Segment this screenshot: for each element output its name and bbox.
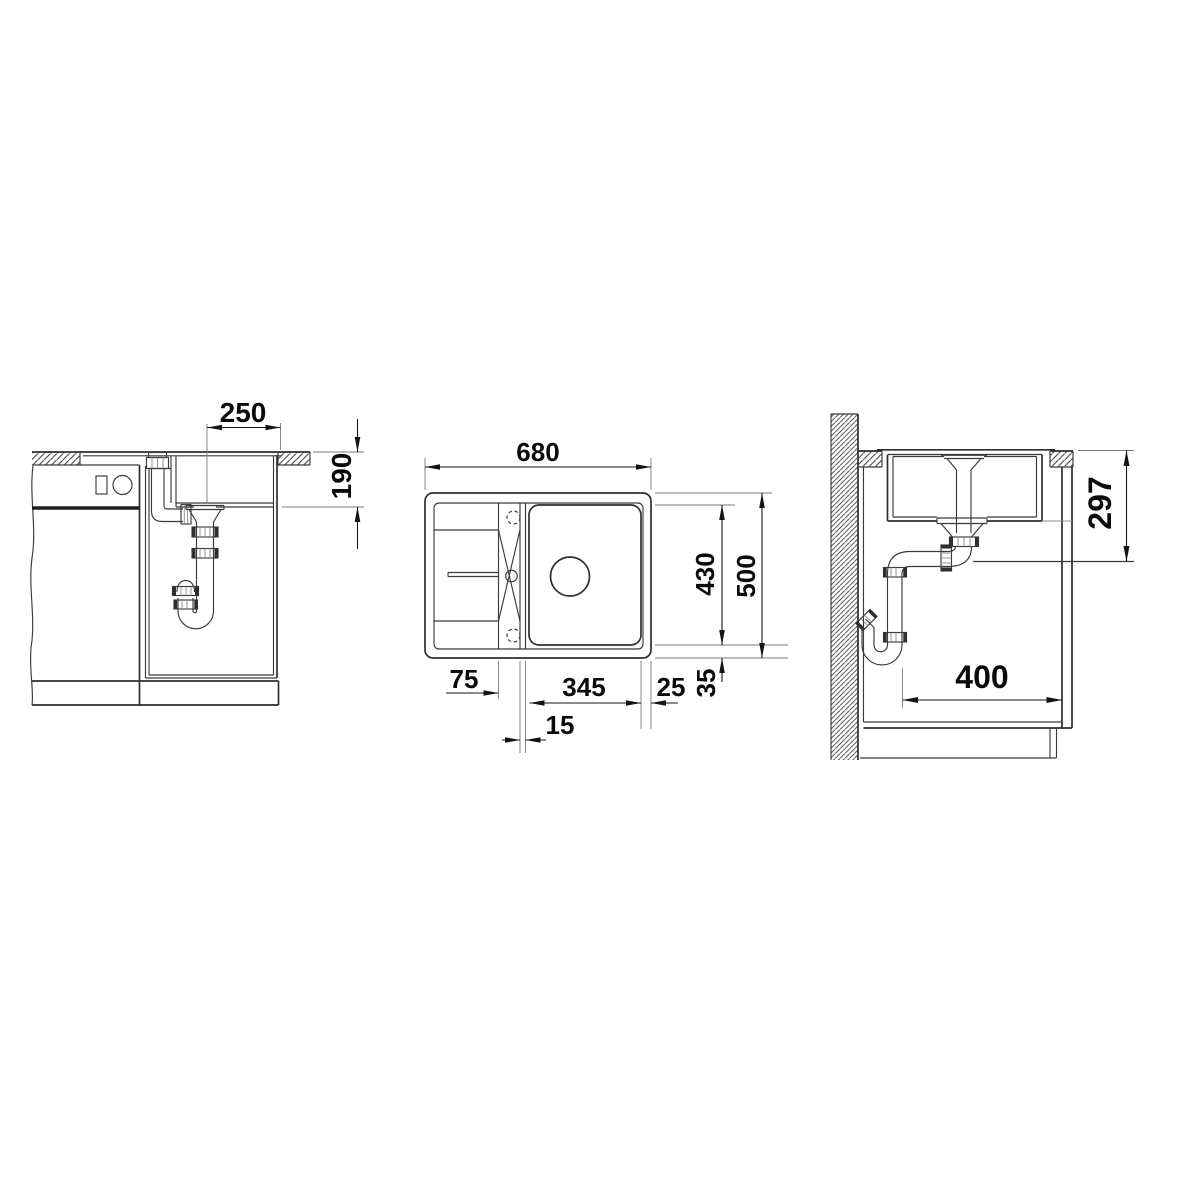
nut-end xyxy=(174,600,177,609)
dim-arrow xyxy=(355,437,361,452)
dim-arrow xyxy=(759,643,765,658)
trap-u-bend xyxy=(193,611,197,613)
trap-u-bend xyxy=(178,611,214,629)
nut-end xyxy=(215,549,219,559)
dimension-345: 345 xyxy=(530,672,642,706)
sink-cross-section xyxy=(877,450,1055,533)
trap-u-bend xyxy=(874,645,888,652)
drain-taper xyxy=(214,510,222,523)
nut-end xyxy=(194,600,197,609)
nut-end xyxy=(941,568,952,572)
overflow-pipe xyxy=(152,469,184,522)
wall xyxy=(831,414,858,760)
drainboard xyxy=(434,503,526,649)
dim-arrow xyxy=(1047,697,1063,703)
dimension-400: 400 xyxy=(903,659,1063,708)
nut-end xyxy=(903,633,906,643)
nut-end xyxy=(941,545,952,549)
counter-hatch-left xyxy=(858,452,882,468)
dim-arrow xyxy=(530,700,545,706)
break-line xyxy=(31,466,34,705)
strainer-body xyxy=(937,518,987,537)
dim-label-430: 430 xyxy=(690,552,720,595)
dim-label-25: 25 xyxy=(657,672,686,702)
dim-arrow xyxy=(759,493,765,508)
nut-end xyxy=(195,587,199,596)
counter-hatch-left xyxy=(32,453,80,466)
strainer-nut xyxy=(950,537,979,547)
technical-drawing: 250 190 xyxy=(0,0,1200,1200)
nut-end xyxy=(192,549,196,559)
tailpipe-nut xyxy=(192,549,218,559)
tap-hole-dashed xyxy=(507,511,520,524)
nut-end xyxy=(975,537,979,547)
drain-hole xyxy=(551,557,590,596)
dim-arrow xyxy=(719,630,725,645)
dim-arrow xyxy=(484,690,499,696)
dim-label-297: 297 xyxy=(1082,476,1118,529)
dim-label-250: 250 xyxy=(220,397,267,428)
drain-funnel xyxy=(941,455,987,533)
dim-arrow xyxy=(626,700,641,706)
funnel-taper xyxy=(947,459,957,471)
appliance-button xyxy=(96,476,107,494)
tap-hole-nut xyxy=(147,458,169,469)
dim-arrow xyxy=(425,464,440,470)
nut-end xyxy=(192,527,196,537)
dim-label-75: 75 xyxy=(450,664,479,694)
bowl-edge xyxy=(529,505,641,645)
dimension-25: 25 xyxy=(651,672,685,706)
sink-outline xyxy=(425,493,651,658)
dim-label-190: 190 xyxy=(326,453,357,500)
counter-hatch-right xyxy=(1050,452,1073,468)
nut-end xyxy=(173,587,177,596)
trap-u-bend xyxy=(862,645,902,665)
funnel-taper xyxy=(971,459,981,471)
dimension-250: 250 xyxy=(207,397,281,502)
wall-hatch xyxy=(831,414,858,760)
main-bowl xyxy=(529,505,641,645)
nut-end xyxy=(215,527,219,537)
dimension-75: 75 xyxy=(446,664,499,696)
dim-arrow xyxy=(505,737,520,743)
siphon xyxy=(856,518,987,665)
dimension-680: 680 xyxy=(425,437,651,490)
nut-end xyxy=(884,568,887,578)
strainer-taper xyxy=(972,524,984,538)
sink-installation-drawing-page: 250 190 xyxy=(0,0,1200,1200)
dimension-430: 430 xyxy=(655,505,788,645)
nut-end xyxy=(884,633,887,643)
strainer-taper xyxy=(941,524,953,538)
dimension-35: 35 xyxy=(691,658,725,697)
side-section-view: 297 400 xyxy=(831,414,1134,760)
dim-arrow xyxy=(526,737,541,743)
sink-cross-section xyxy=(83,453,281,508)
tap-hole-dashed xyxy=(507,629,520,642)
appliance-knob xyxy=(113,476,132,495)
front-section-view: 250 190 xyxy=(31,397,364,705)
dim-arrow xyxy=(1124,546,1130,562)
dim-label-500: 500 xyxy=(731,554,761,597)
dim-label-400: 400 xyxy=(955,659,1008,695)
nut-end xyxy=(903,568,906,578)
dim-label-35: 35 xyxy=(691,669,721,698)
dim-arrow xyxy=(636,464,651,470)
control-knob xyxy=(506,570,518,582)
top-view: 680 430 500 35 xyxy=(425,437,788,753)
dim-label-15: 15 xyxy=(546,710,575,740)
dimension-15: 15 xyxy=(502,710,574,743)
tailpipe-nut xyxy=(192,527,218,537)
drain-body xyxy=(186,506,224,523)
sink-outer-edge xyxy=(425,493,651,658)
cabinet xyxy=(31,455,279,705)
dim-arrow xyxy=(1124,451,1130,467)
dim-arrow xyxy=(903,697,919,703)
tap-hole-flange xyxy=(149,453,167,458)
cabinet xyxy=(860,467,1072,758)
drain-taper xyxy=(189,510,197,523)
dim-arrow xyxy=(719,505,725,520)
dim-label-345: 345 xyxy=(562,672,605,702)
dimension-190: 190 xyxy=(282,419,364,549)
siphon xyxy=(152,469,225,629)
horizontal-pipe-nut xyxy=(941,545,952,571)
dim-arrow xyxy=(266,425,281,431)
dim-label-680: 680 xyxy=(516,437,559,467)
nut-end xyxy=(868,609,877,618)
counter-hatch-right xyxy=(278,453,310,466)
dim-arrow xyxy=(355,507,361,522)
